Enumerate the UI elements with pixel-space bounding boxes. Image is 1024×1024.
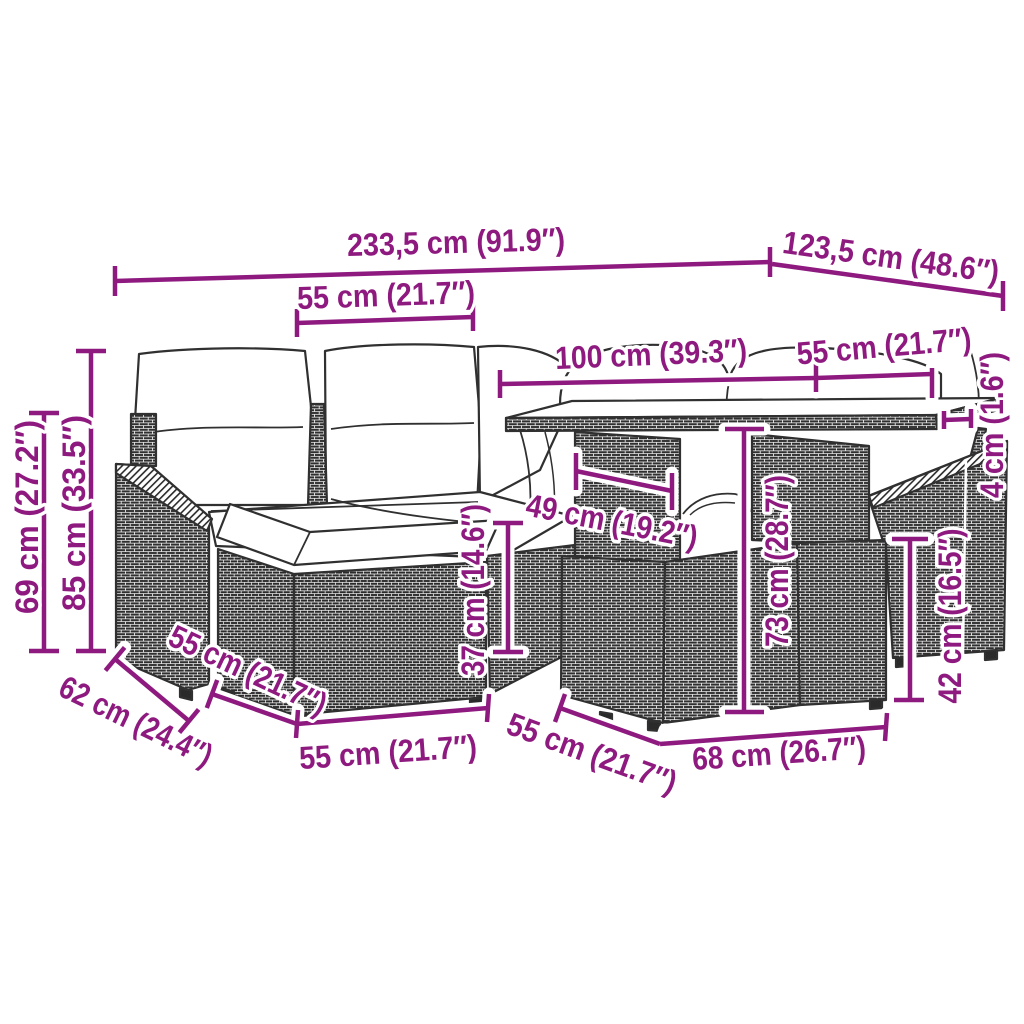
svg-text:73 cm (28.7″): 73 cm (28.7″) (759, 475, 795, 647)
svg-text:233,5 cm (91.9″): 233,5 cm (91.9″) (347, 221, 566, 263)
svg-text:85 cm (33.5″): 85 cm (33.5″) (56, 415, 92, 611)
svg-text:55 cm (21.7″): 55 cm (21.7″) (296, 274, 475, 316)
svg-text:42 cm (16.5″): 42 cm (16.5″) (932, 529, 968, 704)
svg-text:69 cm (27.2″): 69 cm (27.2″) (9, 420, 45, 614)
svg-text:37 cm (14.6″): 37 cm (14.6″) (455, 504, 491, 676)
svg-text:4 cm (1.6″): 4 cm (1.6″) (974, 352, 1010, 498)
